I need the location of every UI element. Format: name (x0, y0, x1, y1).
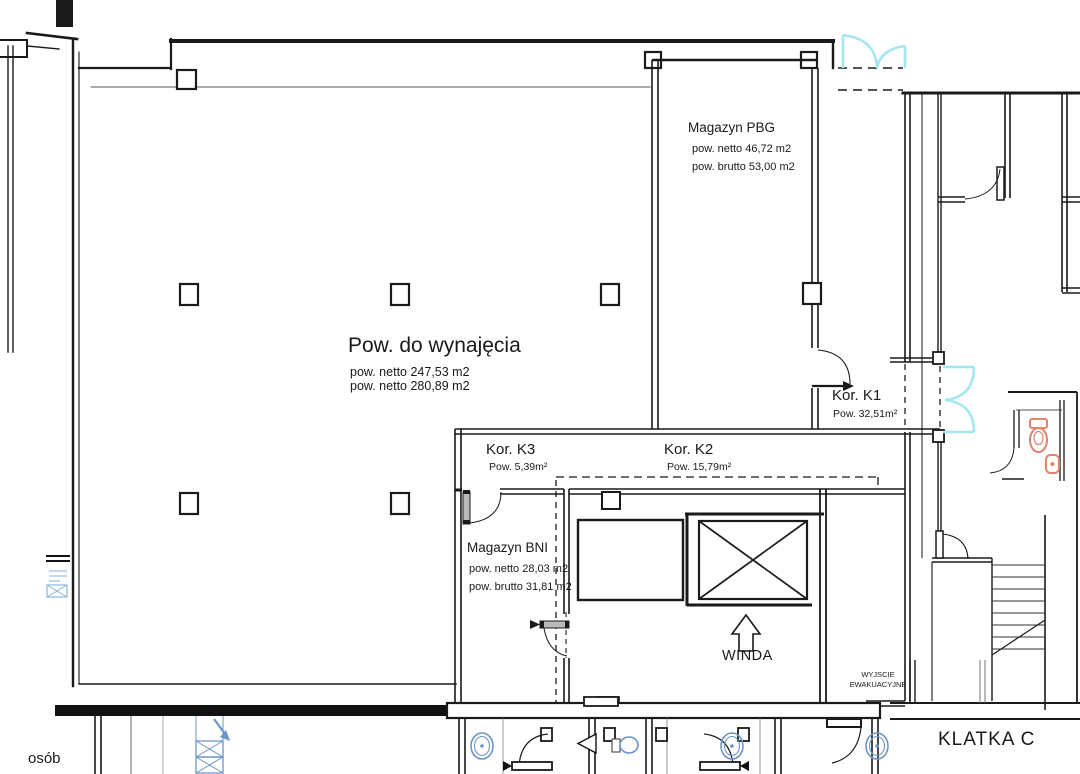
double-swing-door-icon (843, 35, 974, 432)
floor-plan-drawing (0, 0, 1080, 774)
elevator-label: WINDA (722, 648, 773, 664)
up-arrow-icon (732, 615, 760, 651)
lamp-icon (471, 733, 888, 759)
door-arc-icon (530, 620, 569, 656)
room-pbg-name: Magazyn PBG (688, 120, 775, 135)
emergency-exit-line2: EWAKUACYJNE (840, 680, 916, 690)
corridor-k3-area: Pow. 5,39m² (489, 462, 547, 474)
blue-stamp-icon (46, 556, 70, 597)
corridor-k1-name: Kor. K1 (832, 388, 881, 405)
edge-cutoff-text: osób (28, 751, 61, 768)
room-rentable-area-netto: pow. netto 247,53 m2 (350, 365, 470, 379)
lower-floor-walls (95, 716, 878, 774)
corridor-k2-area: Pow. 15,79m² (667, 462, 731, 474)
stairs-icon (992, 515, 1045, 710)
emergency-exit-line1: WYJSCIE (840, 670, 916, 680)
room-bni-area-brutto: pow. brutto 31,81 m2 (469, 578, 572, 596)
bottom-walls (55, 660, 1080, 719)
corridor-k2-name: Kor. K2 (664, 442, 713, 459)
staircase-label: KLATKA C (938, 729, 1035, 750)
room-rentable-area-brutto: pow. netto 280,89 m2 (350, 379, 470, 393)
door-arc-icon (936, 167, 1004, 559)
room-pbg-area-brutto: pow. brutto 53,00 m2 (692, 158, 795, 176)
room-bni-area-netto: pow. netto 28,03 m2 (469, 560, 568, 578)
room-bni-name: Magazyn BNI (467, 540, 548, 555)
corridor-k1-area: Pow. 32,51m² (833, 409, 897, 421)
lobby-walls (564, 489, 683, 708)
door-arc-icon (463, 490, 501, 524)
pbg-walls (652, 60, 818, 429)
door-arc-icon (812, 350, 854, 391)
room-pbg-area-netto: pow. netto 46,72 m2 (692, 140, 791, 158)
urinal-icon (1046, 455, 1059, 473)
room-rentable-name: Pow. do wynajęcia (348, 334, 521, 358)
emergency-exit-label: WYJSCIE EWAKUACYJNE (840, 670, 916, 689)
elevator-cross-icon (685, 489, 826, 702)
shaft-hatch-icon (196, 716, 230, 773)
floor-plan: Pow. do wynajęcia pow. netto 247,53 m2 p… (0, 0, 1080, 774)
corridor-k3-name: Kor. K3 (486, 442, 535, 459)
toilet-icon (1030, 419, 1047, 452)
